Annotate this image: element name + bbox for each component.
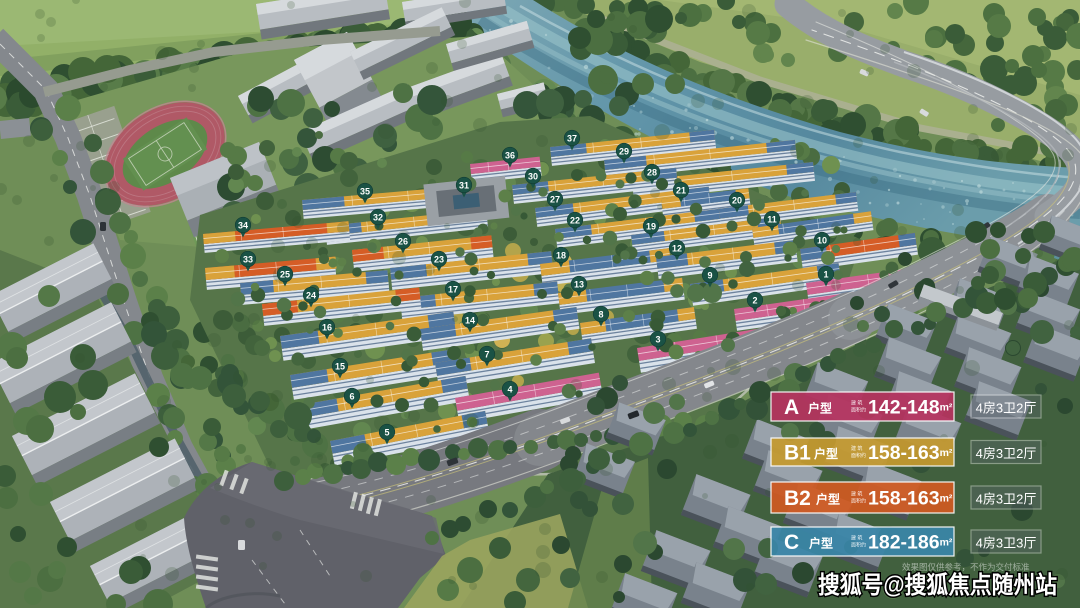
svg-text:15: 15 (335, 362, 345, 372)
svg-text:16: 16 (322, 323, 332, 333)
svg-text:5: 5 (384, 428, 389, 438)
svg-text:26: 26 (398, 237, 408, 247)
svg-text:户型: 户型 (808, 401, 832, 416)
svg-text:17: 17 (448, 285, 458, 295)
svg-text:30: 30 (528, 172, 538, 182)
svg-text:34: 34 (238, 221, 248, 231)
svg-text:4: 4 (507, 385, 512, 395)
svg-text:11: 11 (767, 215, 777, 225)
svg-text:2: 2 (752, 296, 757, 306)
svg-text:建 筑: 建 筑 (851, 400, 862, 407)
svg-text:29: 29 (619, 147, 629, 157)
svg-text:B1: B1 (784, 442, 811, 465)
svg-text:3: 3 (655, 335, 660, 345)
svg-text:效果图仅供参考，不作为交付标准: 效果图仅供参考，不作为交付标准 (902, 562, 1030, 572)
svg-text:12: 12 (672, 244, 682, 254)
svg-text:面积约: 面积约 (851, 407, 866, 414)
svg-text:23: 23 (434, 255, 444, 265)
svg-text:14: 14 (465, 316, 475, 326)
svg-text:A: A (784, 396, 799, 419)
svg-text:户型: 户型 (814, 446, 838, 461)
svg-text:4房3卫2厅: 4房3卫2厅 (976, 446, 1037, 461)
svg-text:面积约: 面积约 (851, 498, 866, 505)
svg-text:6: 6 (349, 392, 354, 402)
svg-text:B2: B2 (784, 487, 811, 510)
svg-text:13: 13 (574, 280, 584, 290)
svg-text:C: C (784, 531, 799, 554)
svg-text:20: 20 (732, 196, 742, 206)
svg-text:9: 9 (707, 271, 712, 281)
svg-text:36: 36 (505, 151, 515, 161)
svg-text:31: 31 (459, 181, 469, 191)
svg-text:37: 37 (567, 134, 577, 144)
svg-text:建 筑: 建 筑 (851, 491, 862, 498)
svg-text:25: 25 (280, 270, 290, 280)
svg-text:24: 24 (306, 291, 316, 301)
svg-text:8: 8 (598, 310, 603, 320)
svg-text:32: 32 (373, 213, 383, 223)
svg-text:户型: 户型 (809, 536, 833, 551)
svg-text:面积约: 面积约 (851, 452, 866, 459)
svg-text:4房3卫2厅: 4房3卫2厅 (976, 401, 1037, 416)
svg-text:4房3卫3厅: 4房3卫3厅 (976, 536, 1037, 551)
svg-text:户型: 户型 (816, 492, 840, 507)
svg-text:28: 28 (647, 168, 657, 178)
svg-text:7: 7 (484, 350, 489, 360)
svg-text:18: 18 (556, 251, 566, 261)
svg-text:27: 27 (550, 195, 560, 205)
svg-text:搜狐号@搜狐焦点随州站: 搜狐号@搜狐焦点随州站 (818, 571, 1057, 599)
svg-text:35: 35 (360, 187, 370, 197)
svg-text:19: 19 (646, 222, 656, 232)
svg-text:建 筑: 建 筑 (851, 445, 862, 452)
svg-text:1: 1 (823, 270, 828, 280)
svg-text:22: 22 (570, 216, 580, 226)
svg-text:建 筑: 建 筑 (851, 535, 862, 542)
svg-text:面积约: 面积约 (851, 542, 866, 549)
svg-text:33: 33 (243, 255, 253, 265)
svg-text:4房3卫2厅: 4房3卫2厅 (976, 492, 1037, 507)
svg-text:21: 21 (676, 186, 686, 196)
svg-text:10: 10 (817, 236, 827, 246)
